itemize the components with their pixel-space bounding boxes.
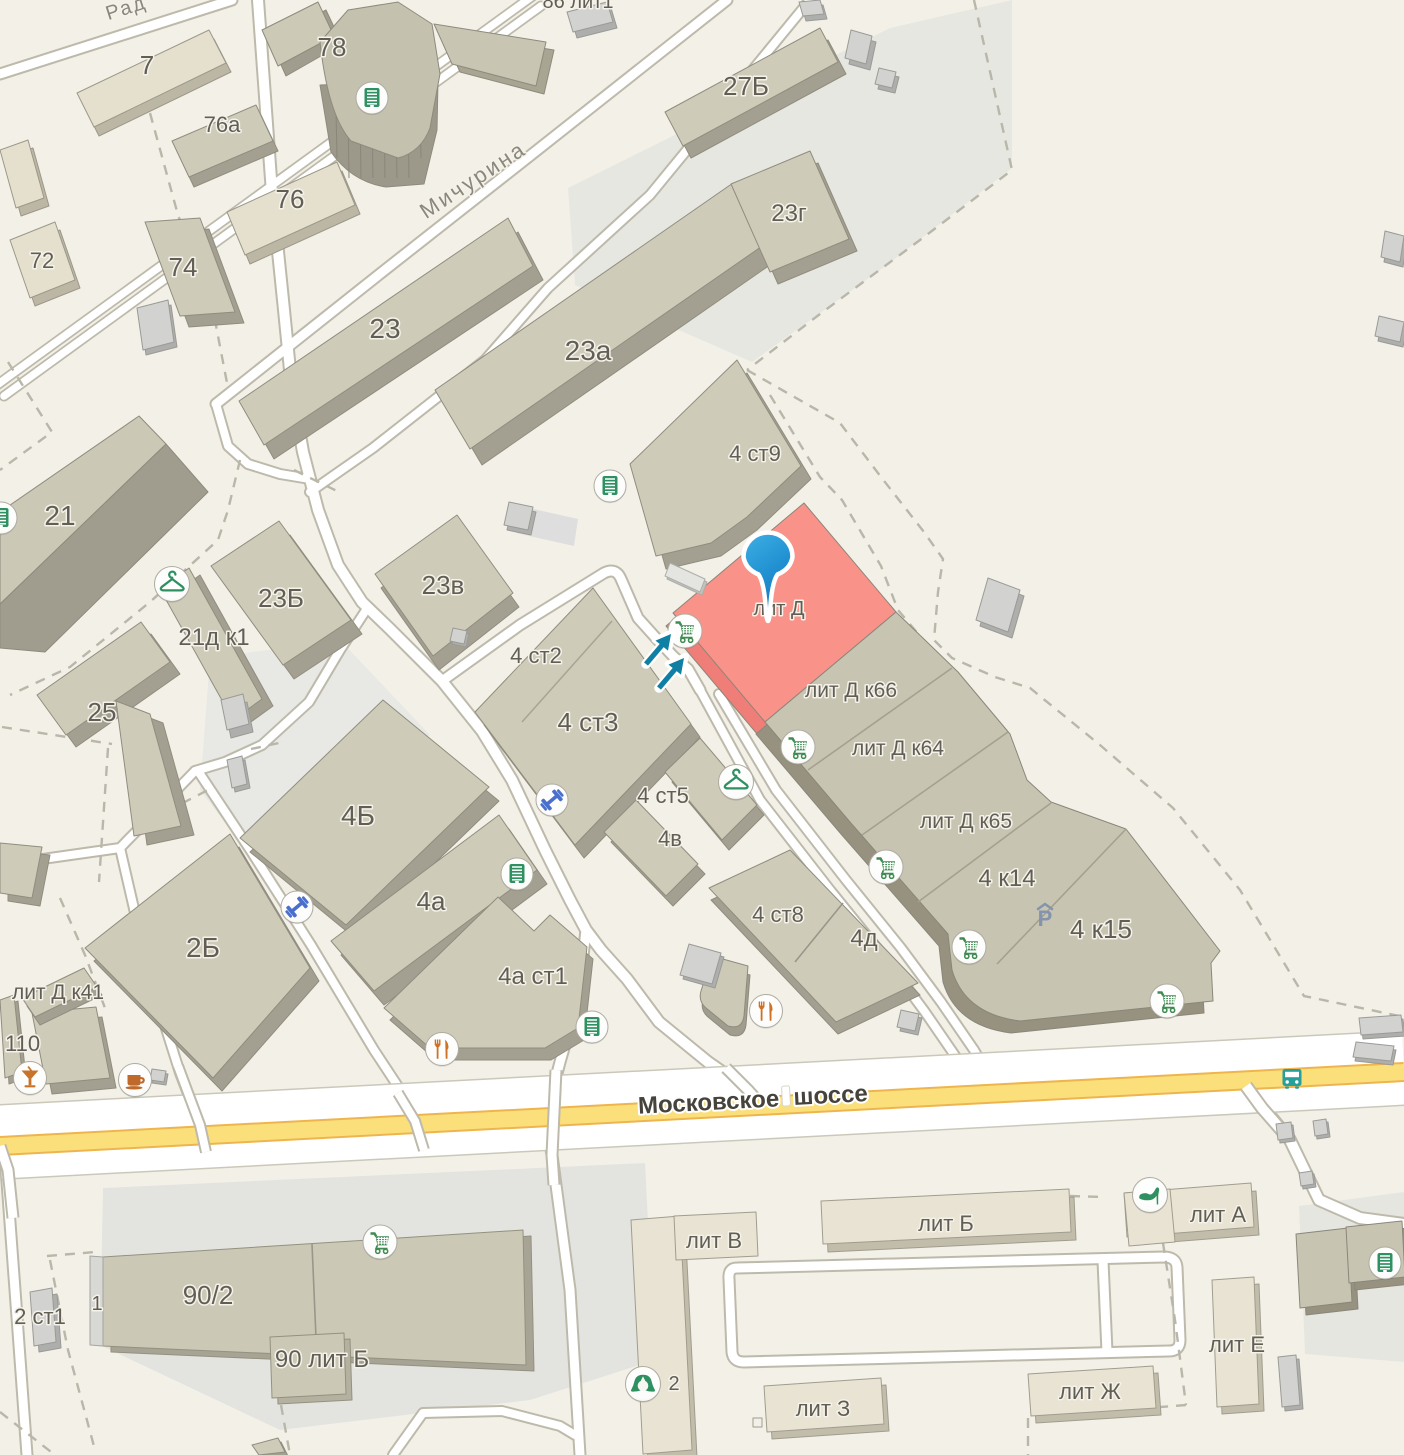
svg-text:27Б: 27Б — [723, 71, 769, 101]
svg-text:P: P — [1038, 906, 1053, 931]
svg-text:4в: 4в — [658, 826, 682, 851]
svg-text:лит Б: лит Б — [918, 1211, 974, 1236]
svg-text:лит Д: лит Д — [753, 598, 805, 620]
svg-text:4 ст5: 4 ст5 — [637, 783, 689, 808]
svg-text:лит Е: лит Е — [1209, 1332, 1265, 1357]
svg-text:4а: 4а — [417, 886, 446, 916]
svg-text:4Б: 4Б — [341, 800, 375, 831]
svg-text:лит Д к66: лит Д к66 — [805, 679, 897, 702]
svg-text:23а: 23а — [565, 335, 612, 366]
svg-text:76а: 76а — [204, 112, 241, 137]
svg-text:лит Д к65: лит Д к65 — [920, 810, 1012, 833]
svg-text:110: 110 — [5, 1031, 40, 1056]
svg-text:76: 76 — [276, 184, 305, 214]
svg-text:лит Д к41: лит Д к41 — [12, 981, 104, 1004]
svg-text:74: 74 — [169, 252, 198, 282]
svg-text:4 ст2: 4 ст2 — [510, 643, 562, 668]
svg-text:23г: 23г — [771, 200, 807, 227]
svg-text:25: 25 — [88, 697, 117, 727]
svg-text:лит А: лит А — [1190, 1202, 1246, 1227]
svg-text:4д: 4д — [850, 925, 877, 952]
svg-text:2Б: 2Б — [186, 932, 220, 963]
svg-text:78: 78 — [318, 32, 347, 62]
svg-text:4 ст8: 4 ст8 — [752, 902, 804, 927]
svg-text:лит Д к64: лит Д к64 — [852, 737, 944, 760]
svg-text:23в: 23в — [422, 570, 465, 600]
svg-text:7: 7 — [140, 50, 154, 80]
svg-text:21д к1: 21д к1 — [178, 624, 249, 651]
svg-text:4а ст1: 4а ст1 — [498, 963, 568, 990]
svg-text:лит З: лит З — [796, 1396, 851, 1421]
svg-text:90/2: 90/2 — [183, 1280, 234, 1310]
svg-text:1: 1 — [91, 1293, 102, 1315]
svg-text:21: 21 — [44, 500, 75, 531]
svg-text:23: 23 — [369, 313, 400, 344]
svg-text:шоссе: шоссе — [793, 1080, 869, 1111]
svg-text:лит Ж: лит Ж — [1059, 1379, 1121, 1404]
svg-text:2 ст1: 2 ст1 — [14, 1304, 66, 1329]
svg-text:23Б: 23Б — [258, 583, 304, 613]
svg-text:86 лит1: 86 лит1 — [543, 0, 614, 13]
svg-text:2: 2 — [668, 1373, 679, 1395]
svg-text:4 к15: 4 к15 — [1070, 914, 1132, 944]
svg-text:90 лит Б: 90 лит Б — [275, 1346, 369, 1373]
svg-text:4 к14: 4 к14 — [978, 865, 1035, 892]
svg-text:4 ст3: 4 ст3 — [557, 707, 618, 737]
svg-text:4 ст9: 4 ст9 — [729, 441, 781, 466]
svg-text:лит В: лит В — [686, 1228, 742, 1253]
svg-text:72: 72 — [30, 248, 54, 273]
